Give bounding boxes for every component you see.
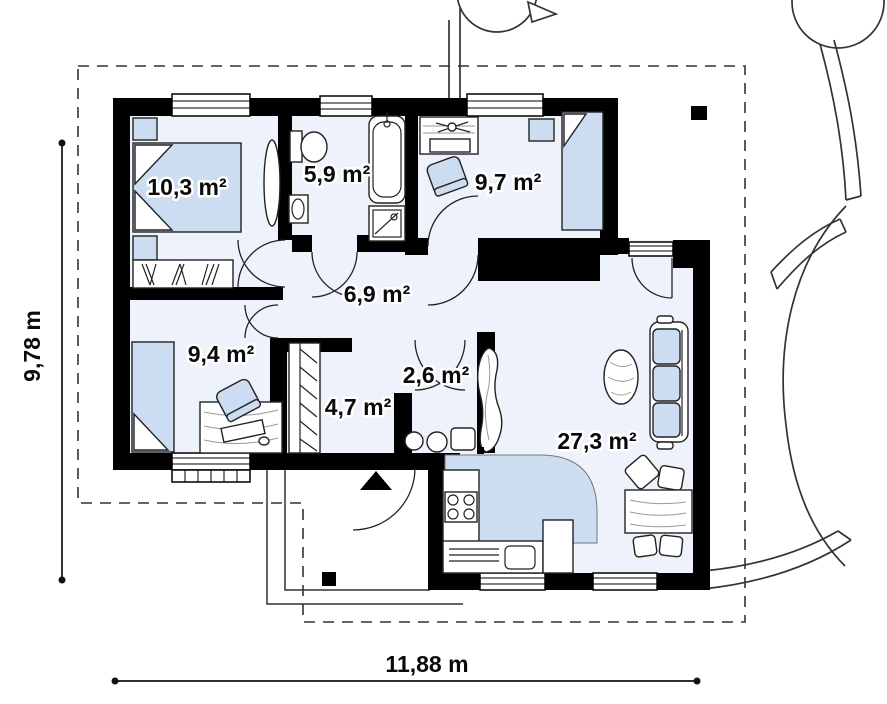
room-area-label: 10,3 m² [147, 174, 227, 200]
floor-plan-canvas: 10,3 m² 5,9 m² 9,7 m² 6,9 m² 9,4 m² 4,7 … [0, 0, 887, 704]
mouse [259, 437, 269, 445]
chair [633, 535, 658, 558]
room-area-label: 5,9 m² [304, 161, 371, 187]
kitchen-cabinet [543, 520, 573, 573]
keyboard [430, 139, 470, 152]
room-area-label: 2,6 m² [403, 362, 470, 388]
window-icon [593, 573, 657, 590]
site-column [691, 106, 707, 120]
entrance-arrow-icon [360, 471, 392, 490]
room-area-label: 9,7 m² [475, 169, 542, 195]
room-area-label: 6,9 m² [344, 281, 411, 307]
tree-icon [449, 0, 556, 98]
height-dimension-label: 9,78 m [19, 310, 45, 382]
window-icon [467, 94, 543, 116]
washbasin [405, 432, 423, 450]
mirror [264, 140, 280, 226]
toilet-cistern [451, 428, 475, 450]
garden-path [703, 206, 851, 589]
room-area-label: 27,3 m² [557, 428, 637, 454]
chair [659, 535, 683, 557]
window-icon [320, 96, 372, 116]
window-icon [172, 453, 250, 482]
toilet-cistern [290, 131, 302, 162]
nightstand [529, 119, 554, 141]
width-dimension-label: 11,88 m [385, 651, 468, 677]
chair [657, 465, 684, 491]
window-icon [480, 573, 545, 590]
terrace-door-threshold [629, 242, 673, 256]
toilet-bowl [427, 432, 447, 452]
toilet-bowl [301, 132, 327, 162]
desk-lamp-icon [448, 123, 456, 131]
nightstand [133, 118, 157, 140]
furniture-wardrobe [289, 343, 320, 453]
rug [604, 350, 638, 404]
floor-plan-drawing: 10,3 m² 5,9 m² 9,7 m² 6,9 m² 9,4 m² 4,7 … [0, 0, 887, 704]
room-area-label: 9,4 m² [188, 341, 255, 367]
nightstand [133, 236, 157, 260]
tree-icon [792, 0, 884, 200]
bathtub [369, 116, 405, 203]
porch-column [322, 572, 336, 586]
room-area-label: 4,7 m² [325, 394, 392, 420]
window-icon [172, 94, 250, 116]
